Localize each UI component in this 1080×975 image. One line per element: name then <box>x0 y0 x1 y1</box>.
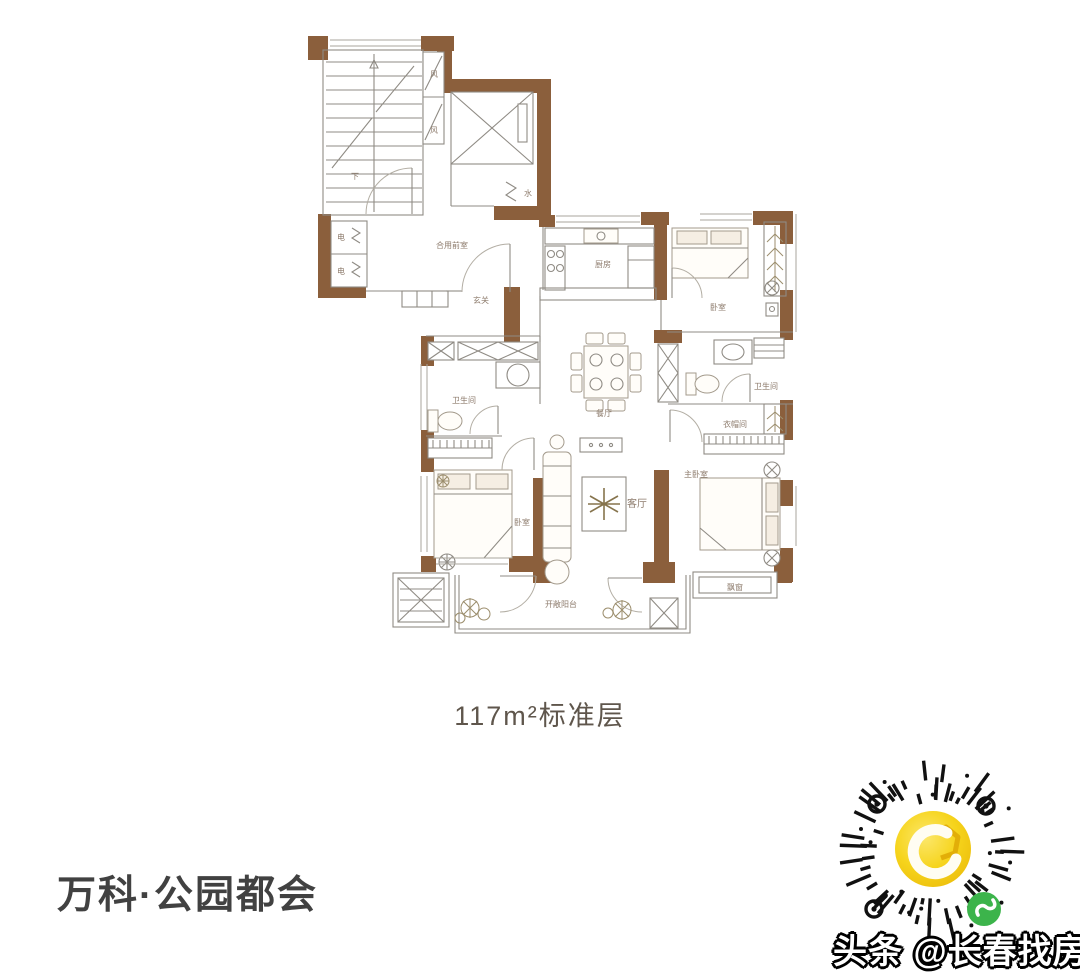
page: 下 风 风 电 电 <box>0 0 1080 975</box>
electrical-shaft: 电 电 <box>331 221 367 287</box>
bathroom-right-label: 卫生间 <box>754 381 778 391</box>
balcony-label: 开敞阳台 <box>545 599 577 609</box>
toilet-icon <box>428 410 462 432</box>
closet-label: 衣帽间 <box>723 419 747 429</box>
bedroom-top: 卧室 <box>672 214 796 332</box>
kitchen: 厨房 <box>540 216 656 300</box>
plant-icon <box>437 475 449 487</box>
wechat-badge-icon <box>967 892 1001 926</box>
plant-icon <box>603 600 631 620</box>
qr-code <box>835 753 1040 953</box>
vent-shaft: 风 风 <box>423 52 444 144</box>
fan-icon <box>764 550 780 566</box>
stairwell: 下 <box>323 40 423 215</box>
plan-caption: 117m²标准层 <box>0 694 1080 733</box>
dining-table-icon <box>571 333 641 411</box>
ac-unit-icon <box>650 598 678 628</box>
master-bedroom-label: 主卧室 <box>684 469 708 479</box>
sofa-icon <box>543 435 571 584</box>
bay-window: 飘窗 <box>693 572 777 598</box>
bay-window-label: 飘窗 <box>727 582 743 592</box>
rug-icon <box>582 477 626 531</box>
plant-icon <box>455 598 490 623</box>
entry-label: 玄关 <box>473 295 489 305</box>
fan-icon <box>439 554 455 570</box>
closet: 衣帽间 <box>670 404 786 454</box>
qr-center-logo-icon <box>895 811 971 887</box>
bathroom-left: 卫生间 <box>421 296 540 436</box>
stairs-down-label: 下 <box>351 172 359 181</box>
living-room: 客厅 <box>543 435 647 584</box>
bedroom-left-label: 卧室 <box>514 517 530 527</box>
ac-platform <box>393 573 449 627</box>
dining-label: 餐厅 <box>596 409 612 418</box>
bed-icon <box>700 478 780 550</box>
water-label: 水 <box>524 188 532 198</box>
kitchen-label: 厨房 <box>595 259 611 269</box>
watermark-text: 头条 @长春找房豹 <box>833 924 1080 973</box>
fan-icon <box>764 462 780 478</box>
bedroom-top-label: 卧室 <box>710 302 726 312</box>
living-label: 客厅 <box>627 497 647 510</box>
vent-top-label: 风 <box>430 70 438 79</box>
wardrobe-rail-icon <box>704 434 784 454</box>
project-title: 万科·公园都会 <box>57 864 318 920</box>
bedroom-left: 卧室 <box>421 438 534 570</box>
balcony: 开敞阳台 <box>455 575 690 633</box>
tv-cabinet-icon <box>580 438 622 452</box>
elec-bottom-label: 电 <box>337 266 345 276</box>
elec-top-label: 电 <box>337 232 345 242</box>
wardrobe-rail-icon <box>428 438 492 458</box>
dining-room: 餐厅 <box>571 300 661 418</box>
shared-lobby-label: 合用前室 <box>436 240 468 250</box>
bathroom-left-label: 卫生间 <box>452 395 476 405</box>
toilet-icon <box>686 373 719 395</box>
elevator <box>451 92 533 206</box>
vent-bottom-label: 风 <box>430 126 438 135</box>
